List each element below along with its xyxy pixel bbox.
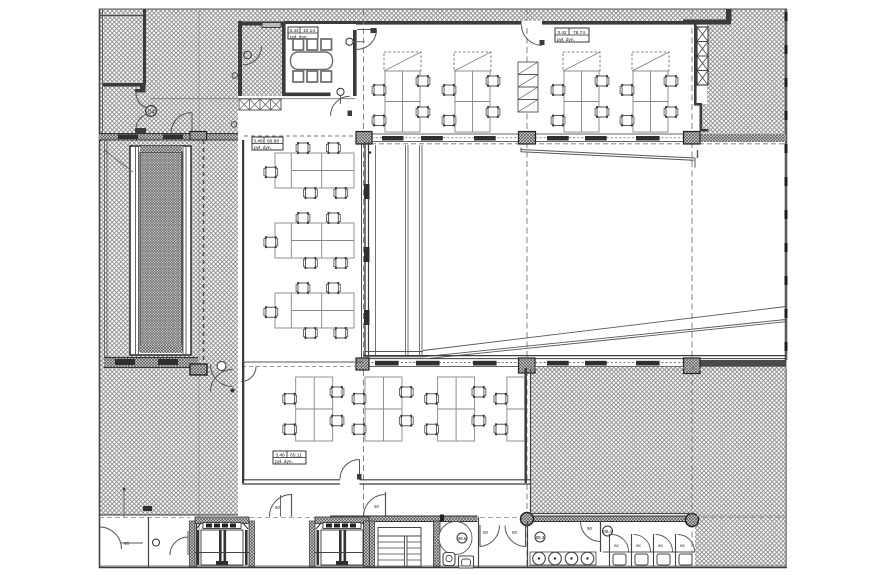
svg-text:66.88: 66.88 (267, 138, 279, 144)
svg-text:90: 90 (374, 504, 380, 509)
svg-text:90: 90 (587, 526, 593, 531)
svg-text:3.48: 3.48 (253, 138, 263, 144)
svg-text:pył. dyn.: pył. dyn. (254, 145, 272, 151)
svg-text:wc: wc (658, 543, 663, 548)
svg-text:90: 90 (512, 530, 518, 535)
svg-text:78.74: 78.74 (573, 30, 585, 36)
svg-text:wc: wc (680, 543, 685, 548)
svg-text:08.5: 08.5 (458, 536, 467, 541)
svg-text:D4: D4 (147, 109, 154, 115)
svg-text:90: 90 (275, 505, 281, 510)
svg-text:90: 90 (483, 530, 489, 535)
svg-text:wc: wc (636, 543, 641, 548)
svg-text:08.4: 08.4 (603, 529, 612, 534)
svg-text:pył. dyn.: pył. dyn. (275, 459, 293, 465)
svg-text:90: 90 (124, 541, 130, 546)
svg-text:10.14: 10.14 (303, 28, 315, 34)
svg-text:pył. dyn.: pył. dyn. (557, 37, 575, 43)
svg-text:3.44: 3.44 (289, 28, 299, 34)
svg-text:65.11: 65.11 (290, 452, 302, 458)
svg-text:3.46: 3.46 (275, 452, 285, 458)
svg-text:wc: wc (614, 543, 619, 548)
svg-text:3.42: 3.42 (557, 30, 567, 36)
svg-text:08.3: 08.3 (536, 535, 545, 540)
